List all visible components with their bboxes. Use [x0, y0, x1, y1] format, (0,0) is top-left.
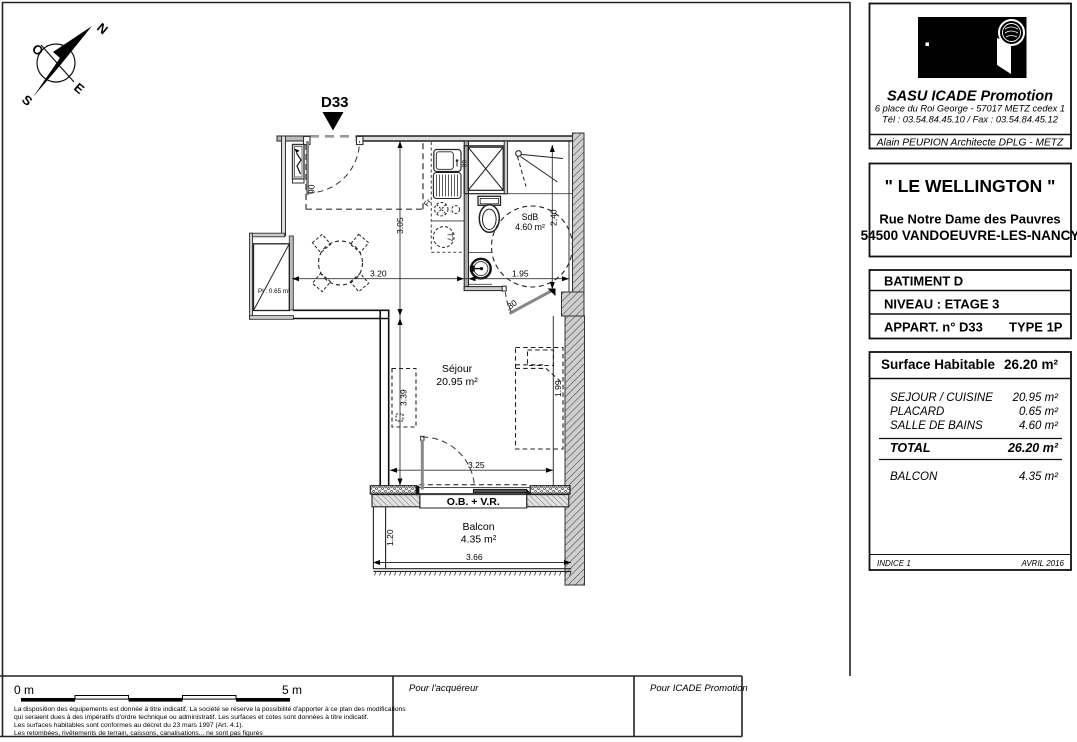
- svg-text:3.39: 3.39: [399, 389, 409, 406]
- svg-text:SEJOUR / CUISINE: SEJOUR / CUISINE: [890, 392, 993, 404]
- svg-text:Tél : 03.54.84.45.10 / Fax :: Tél : 03.54.84.45.10 / Fax : 03.54.84.45…: [882, 115, 1059, 125]
- svg-text:26.20 m²: 26.20 m²: [1004, 357, 1059, 372]
- svg-text:4.35 m²: 4.35 m²: [1019, 471, 1059, 483]
- svg-text:O.B. + V.R.: O.B. + V.R.: [447, 496, 500, 508]
- svg-text:SASU ICADE Promotion: SASU ICADE Promotion: [887, 89, 1053, 105]
- svg-text:1.95: 1.95: [512, 269, 529, 279]
- svg-text:INDICE 1: INDICE 1: [877, 559, 911, 568]
- svg-text:T7: T7: [446, 233, 455, 242]
- svg-text:0 m: 0 m: [14, 683, 34, 697]
- svg-text:Pour l'acquéreur: Pour l'acquéreur: [409, 683, 479, 694]
- svg-text:BATIMENT D: BATIMENT D: [884, 274, 963, 289]
- svg-text:60: 60: [460, 160, 467, 168]
- svg-text:90: 90: [307, 184, 317, 194]
- svg-text:La disposition des équipements: La disposition des équipements est donné…: [14, 706, 406, 713]
- svg-text:5 m: 5 m: [282, 683, 302, 697]
- svg-text:Balcon: Balcon: [462, 521, 494, 533]
- svg-text:Les surfaces habitables sont c: Les surfaces habitables sont conformes a…: [14, 722, 243, 729]
- svg-text:NIVEAU : ETAGE 3: NIVEAU : ETAGE 3: [884, 297, 999, 312]
- svg-text:AVRIL 2016: AVRIL 2016: [1020, 559, 1064, 568]
- svg-text:54500 VANDOEUVRE-LES-NANCY: 54500 VANDOEUVRE-LES-NANCY: [861, 228, 1077, 243]
- svg-text:" LE WELLINGTON ": " LE WELLINGTON ": [885, 176, 1056, 196]
- svg-text:2,40: 2,40: [549, 209, 559, 226]
- svg-text:4.60 m²: 4.60 m²: [515, 222, 545, 232]
- svg-text:BALCON: BALCON: [890, 471, 938, 483]
- svg-text:SdB: SdB: [522, 212, 539, 222]
- svg-text:Rue Notre Dame des Pauvres: Rue Notre Dame des Pauvres: [879, 212, 1060, 227]
- svg-text:APPART. n° D33: APPART. n° D33: [884, 320, 983, 335]
- svg-text:TYPE 1P: TYPE 1P: [1009, 320, 1063, 335]
- svg-text:26.20 m²: 26.20 m²: [1007, 441, 1059, 455]
- svg-text:1.20: 1.20: [385, 529, 395, 546]
- svg-text:3.66: 3.66: [466, 552, 483, 562]
- svg-text:Séjour: Séjour: [442, 363, 473, 375]
- svg-text:20.95 m²: 20.95 m²: [1012, 392, 1060, 404]
- svg-text:3.20: 3.20: [370, 269, 387, 279]
- svg-text:PLACARD: PLACARD: [890, 406, 944, 418]
- svg-text:6 place du Roi George - 57017: 6 place du Roi George - 57017 METZ cedex…: [875, 104, 1065, 114]
- svg-text:Les retombées, rivêtements de: Les retombées, rivêtements de terrain, c…: [14, 730, 263, 737]
- svg-text:Surface Habitable: Surface Habitable: [881, 357, 996, 372]
- svg-text:Alain PEUPION Architecte DPLG: Alain PEUPION Architecte DPLG - METZ: [876, 138, 1064, 149]
- svg-text:D33: D33: [321, 94, 349, 111]
- svg-text:TOTAL: TOTAL: [890, 441, 931, 455]
- svg-text:Pour ICADE Promotion: Pour ICADE Promotion: [650, 683, 748, 694]
- svg-text:Pl : 0.65 m²: Pl : 0.65 m²: [258, 288, 290, 295]
- svg-text:4.60 m²: 4.60 m²: [1019, 420, 1059, 432]
- svg-text:SALLE DE BAINS: SALLE DE BAINS: [890, 420, 983, 432]
- svg-text:4.35 m²: 4.35 m²: [461, 534, 497, 546]
- svg-text:20.95 m²: 20.95 m²: [436, 376, 478, 388]
- svg-text:1.99: 1.99: [553, 380, 563, 397]
- svg-text:3.05: 3.05: [395, 217, 405, 234]
- svg-text:qui seraient dues à des impéra: qui seraient dues à des impératifs d'ord…: [14, 714, 369, 721]
- svg-text:0.65 m²: 0.65 m²: [1019, 406, 1059, 418]
